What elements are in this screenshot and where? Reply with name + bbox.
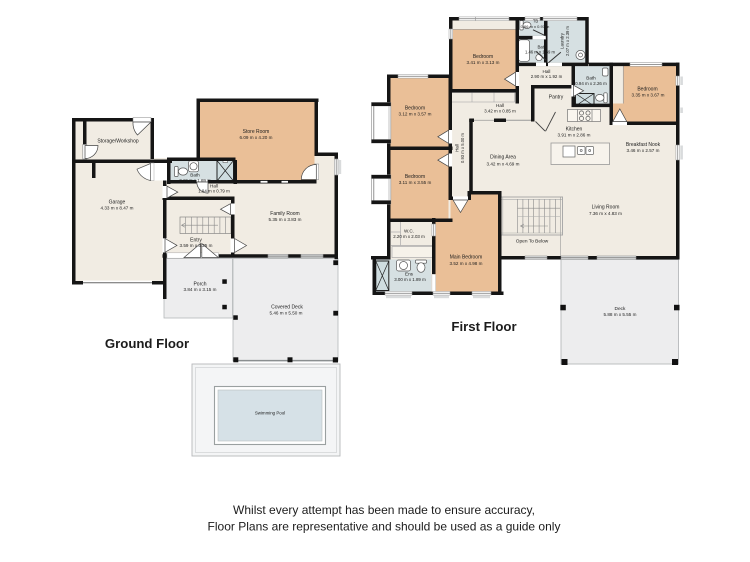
svg-text:Whilst every attempt has been: Whilst every attempt has been made to en… bbox=[233, 503, 535, 517]
svg-text:1.46 m x 1.39 m: 1.46 m x 1.39 m bbox=[525, 49, 556, 54]
svg-text:Pantry: Pantry bbox=[549, 95, 564, 101]
svg-text:0.93 m x 5.00 m: 0.93 m x 5.00 m bbox=[460, 132, 465, 163]
svg-text:3.84 m x 3.15 m: 3.84 m x 3.15 m bbox=[184, 287, 217, 292]
svg-text:2.20 m x 2.03 m: 2.20 m x 2.03 m bbox=[393, 234, 425, 239]
svg-text:TB: TB bbox=[533, 19, 539, 24]
svg-text:1.94 m x 0.79 m: 1.94 m x 0.79 m bbox=[198, 189, 230, 194]
svg-text:Bath: Bath bbox=[586, 76, 596, 81]
svg-text:3.19 m x 1.69 m: 3.19 m x 1.69 m bbox=[179, 178, 211, 183]
svg-text:Open To Below: Open To Below bbox=[516, 239, 549, 245]
svg-text:0.94 m x 2.26 m: 0.94 m x 2.26 m bbox=[575, 81, 607, 86]
svg-text:Ens: Ens bbox=[405, 272, 414, 277]
svg-text:Floor Plans are representative: Floor Plans are representative and shoul… bbox=[208, 519, 561, 533]
svg-text:Storage/Workshop: Storage/Workshop bbox=[97, 139, 139, 145]
svg-text:3.12 m x 3.57 m: 3.12 m x 3.57 m bbox=[399, 112, 432, 117]
svg-text:W.C.: W.C. bbox=[404, 229, 414, 234]
svg-text:5.35 m x 3.83 m: 5.35 m x 3.83 m bbox=[269, 217, 302, 222]
svg-text:5.46 m x 5.50 m: 5.46 m x 5.50 m bbox=[270, 310, 303, 315]
svg-text:Dining Area: Dining Area bbox=[490, 155, 516, 161]
svg-text:6.09 m x 4.20 m: 6.09 m x 4.20 m bbox=[240, 135, 273, 140]
svg-text:3.59 m x 3.25 m: 3.59 m x 3.25 m bbox=[180, 243, 213, 248]
svg-text:2.90 m x 1.92 m: 2.90 m x 1.92 m bbox=[531, 74, 563, 79]
svg-text:7.36 m x 4.83 m: 7.36 m x 4.83 m bbox=[589, 211, 622, 216]
svg-text:3.00 m x 1.89 m: 3.00 m x 1.89 m bbox=[394, 277, 426, 282]
svg-text:0.66 m x 0.97 m: 0.66 m x 0.97 m bbox=[521, 24, 550, 29]
svg-text:3.52 m x 4.98 m: 3.52 m x 4.98 m bbox=[450, 261, 483, 266]
svg-text:3.91 m x 2.86 m: 3.91 m x 2.86 m bbox=[558, 132, 591, 137]
svg-text:Laundry: Laundry bbox=[560, 32, 565, 49]
svg-text:Hall: Hall bbox=[496, 103, 504, 108]
svg-text:Main Bedroom: Main Bedroom bbox=[450, 255, 483, 261]
svg-text:Swimming Pool: Swimming Pool bbox=[255, 410, 285, 415]
svg-text:2.07 m x 2.39 m: 2.07 m x 2.39 m bbox=[565, 25, 570, 56]
svg-text:Ground Floor: Ground Floor bbox=[105, 336, 189, 351]
svg-text:3.42 m x 0.85 m: 3.42 m x 0.85 m bbox=[484, 108, 516, 113]
svg-text:3.42 m x 4.69 m: 3.42 m x 4.69 m bbox=[487, 162, 520, 167]
svg-text:Bath: Bath bbox=[190, 173, 200, 178]
svg-text:3.11 m x 3.55 m: 3.11 m x 3.55 m bbox=[399, 180, 432, 185]
svg-text:Living Room: Living Room bbox=[592, 205, 620, 211]
svg-text:5.88 m x 5.55 m: 5.88 m x 5.55 m bbox=[604, 312, 637, 317]
svg-text:3.35 m x 3.67 m: 3.35 m x 3.67 m bbox=[632, 93, 665, 98]
svg-text:First Floor: First Floor bbox=[451, 319, 516, 334]
svg-text:3.41 m x 3.13 m: 3.41 m x 3.13 m bbox=[467, 60, 500, 65]
svg-text:3.46 m x 2.57 m: 3.46 m x 2.57 m bbox=[627, 148, 660, 153]
svg-text:4.33 m x 8.47 m: 4.33 m x 8.47 m bbox=[101, 205, 134, 210]
svg-text:Hall: Hall bbox=[455, 144, 460, 152]
